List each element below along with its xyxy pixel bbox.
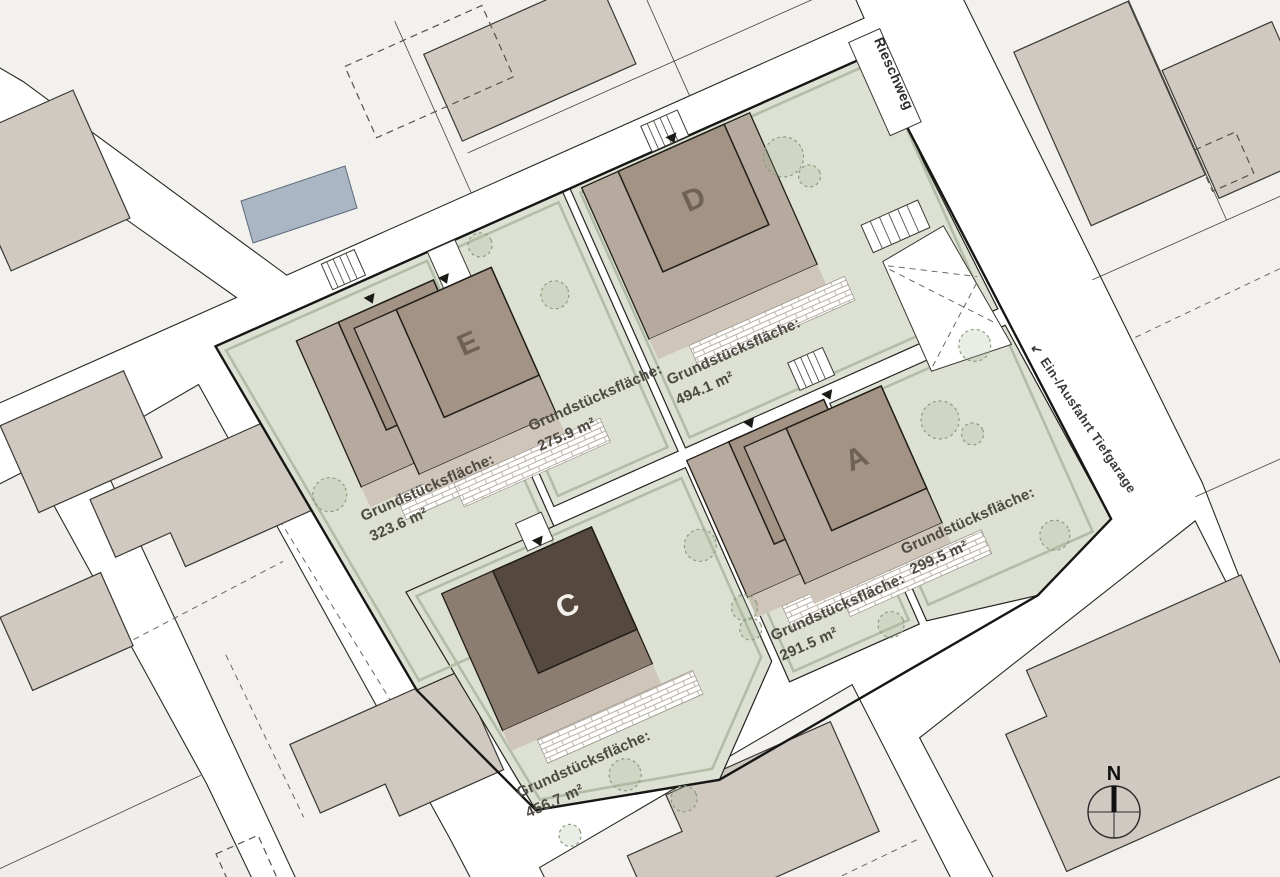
site-plan: F E D [0,0,1280,877]
compass-north-label: N [1107,763,1121,785]
